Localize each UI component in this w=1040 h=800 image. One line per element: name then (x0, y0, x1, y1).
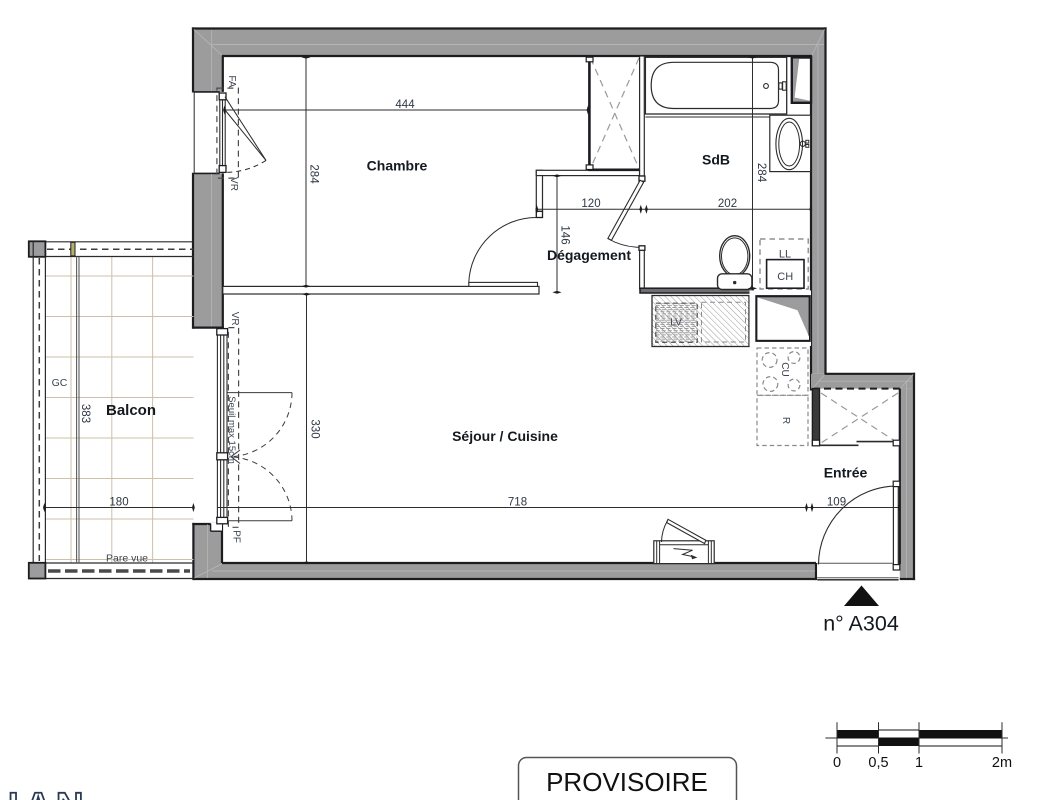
svg-text:Pare vue: Pare vue (106, 553, 148, 565)
svg-text:202: 202 (718, 198, 737, 210)
svg-text:Dégagement: Dégagement (547, 247, 631, 263)
svg-text:PF: PF (231, 530, 242, 543)
svg-text:Séjour / Cuisine: Séjour / Cuisine (452, 428, 558, 444)
svg-text:VR: VR (228, 177, 239, 191)
svg-text:CU: CU (779, 362, 790, 376)
svg-text:R: R (780, 417, 791, 424)
svg-text:n° A304: n° A304 (823, 612, 899, 636)
svg-text:VR: VR (229, 312, 240, 326)
svg-text:109: 109 (827, 497, 846, 509)
svg-text:0: 0 (833, 755, 841, 771)
svg-text:1: 1 (915, 755, 923, 771)
svg-text:Seuil max 15cm: Seuil max 15cm (226, 396, 237, 464)
svg-text:120: 120 (581, 198, 600, 210)
svg-text:LL: LL (779, 249, 791, 261)
svg-text:CH: CH (777, 271, 793, 283)
svg-text:284: 284 (755, 163, 767, 183)
svg-text:GC: GC (52, 377, 68, 389)
svg-text:FA: FA (226, 75, 237, 88)
svg-text:718: 718 (508, 497, 527, 509)
svg-text:Entrée: Entrée (824, 465, 868, 481)
svg-text:180: 180 (109, 497, 128, 509)
svg-text:LAN: LAN (8, 786, 83, 800)
svg-text:330: 330 (309, 419, 321, 438)
svg-text:LV: LV (670, 318, 682, 329)
svg-text:0,5: 0,5 (868, 755, 888, 771)
svg-text:2m: 2m (992, 755, 1012, 771)
svg-text:444: 444 (395, 99, 415, 111)
svg-text:383: 383 (79, 404, 91, 423)
svg-text:PROVISOIRE: PROVISOIRE (546, 767, 708, 797)
svg-text:284: 284 (308, 164, 320, 184)
svg-text:Chambre: Chambre (367, 158, 428, 174)
svg-text:146: 146 (559, 225, 571, 244)
svg-text:Balcon: Balcon (106, 402, 156, 419)
svg-text:SdB: SdB (702, 152, 730, 168)
